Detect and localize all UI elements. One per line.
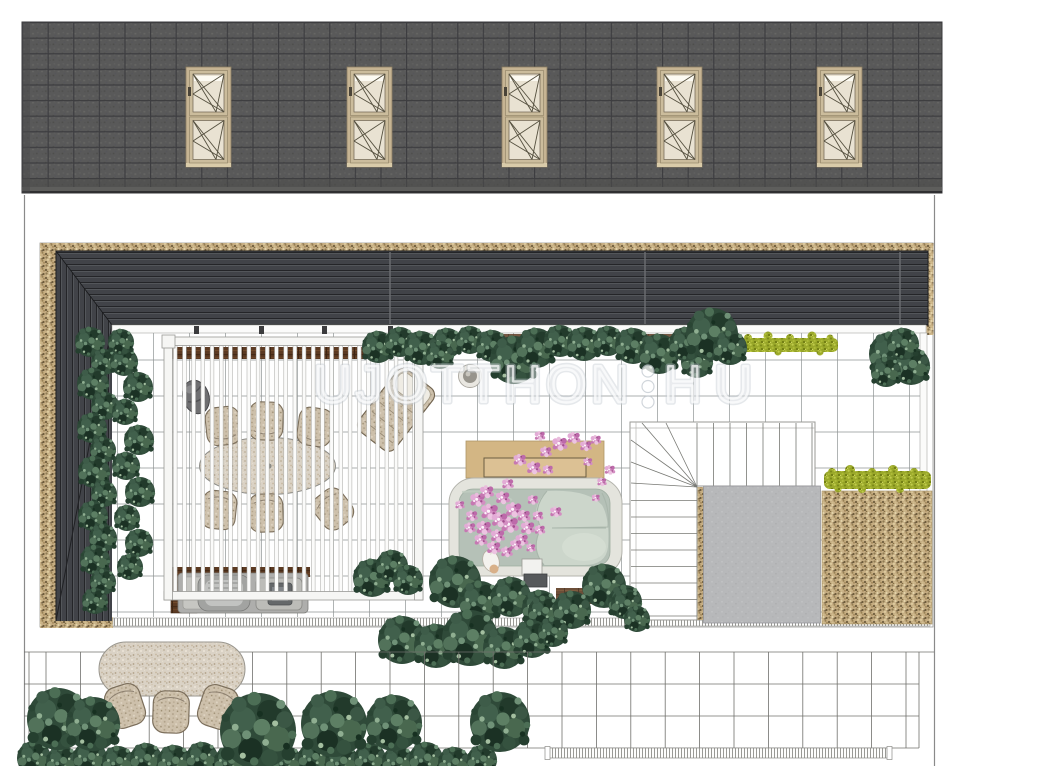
- svg-text:HU: HU: [664, 356, 765, 414]
- svg-text:UJOTTHON: UJOTTHON: [314, 356, 633, 414]
